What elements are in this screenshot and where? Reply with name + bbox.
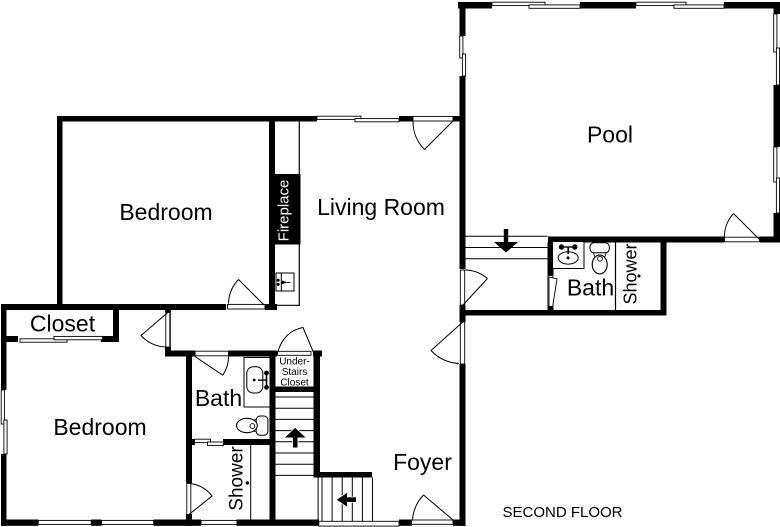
svg-text:Closet: Closet <box>30 311 96 337</box>
svg-text:Stairs: Stairs <box>282 367 308 378</box>
svg-text:Under-: Under- <box>279 357 310 368</box>
svg-text:Shower: Shower <box>227 446 248 511</box>
svg-text:Living Room: Living Room <box>317 194 445 220</box>
svg-text:Bath: Bath <box>195 385 242 411</box>
svg-text:Fireplace: Fireplace <box>276 180 293 242</box>
svg-text:Bedroom: Bedroom <box>119 199 212 225</box>
svg-text:Bath: Bath <box>567 275 614 301</box>
svg-text:Shower: Shower <box>621 243 641 304</box>
svg-text:SECOND FLOOR: SECOND FLOOR <box>502 504 622 521</box>
svg-text:Foyer: Foyer <box>393 449 452 475</box>
svg-text:Pool: Pool <box>587 122 633 148</box>
svg-text:Bedroom: Bedroom <box>53 414 146 440</box>
svg-text:Closet: Closet <box>280 378 309 389</box>
